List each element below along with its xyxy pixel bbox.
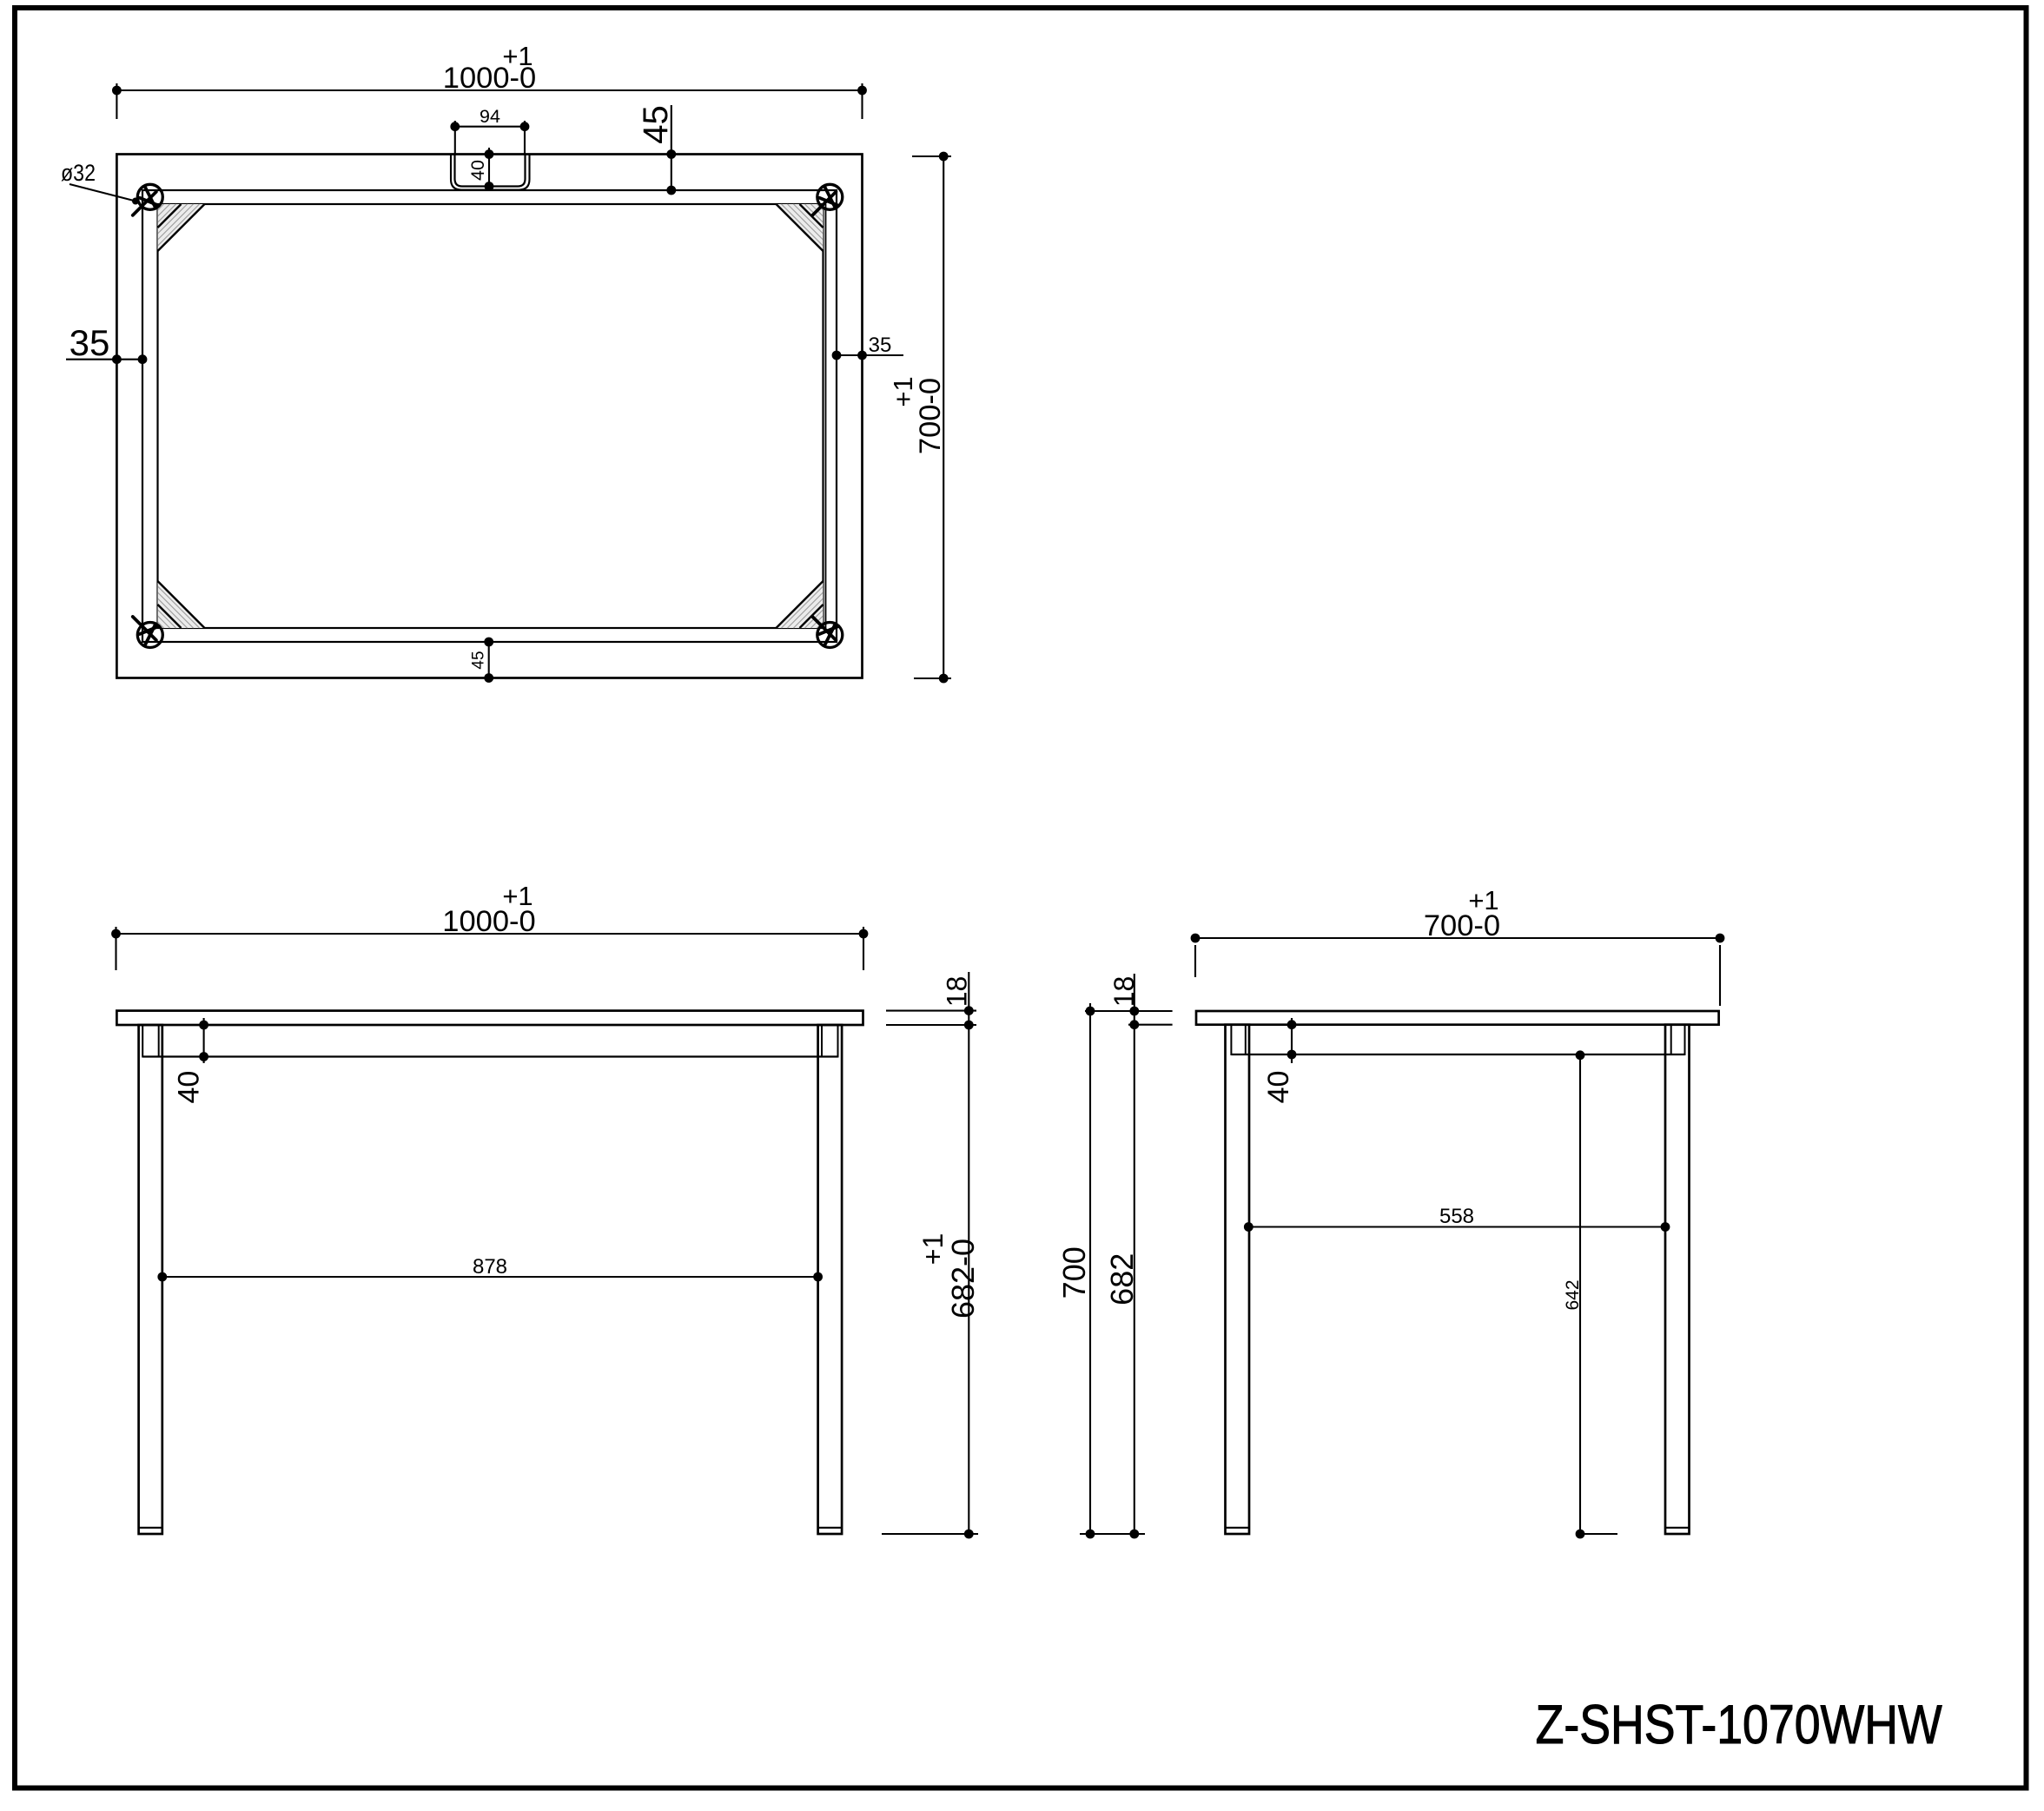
svg-text:45: 45 (470, 651, 488, 669)
svg-text:94: 94 (480, 106, 500, 127)
svg-text:45: 45 (637, 105, 675, 144)
svg-text:18: 18 (1108, 976, 1140, 1008)
svg-text:+1: +1 (502, 881, 532, 911)
svg-text:+1: +1 (1468, 885, 1498, 915)
svg-text:40: 40 (467, 160, 488, 181)
svg-text:35: 35 (69, 322, 110, 363)
svg-text:40: 40 (1262, 1071, 1295, 1104)
svg-text:642: 642 (1563, 1279, 1583, 1310)
svg-text:682: 682 (1104, 1253, 1140, 1305)
svg-text:700-0: 700-0 (914, 378, 947, 454)
svg-text:ø32: ø32 (61, 160, 96, 186)
svg-text:40: 40 (172, 1071, 205, 1104)
svg-text:682-0: 682-0 (945, 1239, 981, 1319)
svg-text:878: 878 (473, 1255, 507, 1279)
svg-text:+1: +1 (502, 41, 532, 71)
svg-text:558: 558 (1439, 1205, 1474, 1228)
svg-text:18: 18 (941, 976, 972, 1008)
svg-text:35: 35 (869, 334, 892, 357)
svg-text:Z-SHST-1070WHW: Z-SHST-1070WHW (1536, 1695, 1942, 1755)
svg-text:700: 700 (1056, 1246, 1092, 1299)
svg-text:+1: +1 (888, 376, 918, 406)
svg-text:+1: +1 (917, 1233, 949, 1265)
